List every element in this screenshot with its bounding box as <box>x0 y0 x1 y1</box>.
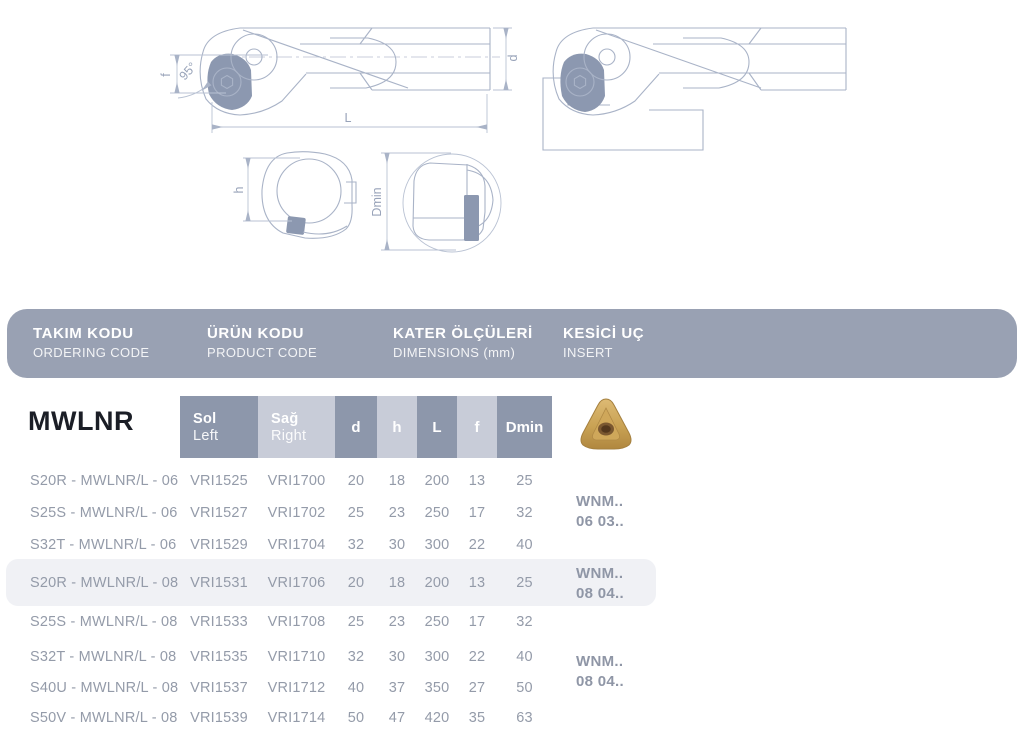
cell-sol: VRI1529 <box>180 535 258 555</box>
workpiece-view-drawing <box>543 28 846 150</box>
col-sol-left: Sol Left <box>180 396 258 458</box>
header-en-label: DIMENSIONS (mm) <box>393 345 533 360</box>
cell-L: 420 <box>417 708 457 728</box>
header-dimensions: KATER ÖLÇÜLERİ DIMENSIONS (mm) <box>393 325 533 360</box>
col-label: Sağ <box>271 411 299 427</box>
header-insert: KESİCİ UÇ INSERT <box>563 325 644 360</box>
insert-code-line: WNM.. <box>576 652 624 672</box>
col-sag-right: Sağ Right <box>258 396 335 458</box>
cell-d: 40 <box>335 678 377 698</box>
table-row: S25S - MWLNR/L - 08 VRI1533 VRI1708 25 2… <box>0 612 700 632</box>
table-header-bar: TAKIM KODU ORDERING CODE ÜRÜN KODU PRODU… <box>7 309 1017 378</box>
side-view-drawing: f 95° L d <box>159 28 520 133</box>
cell-sag: VRI1708 <box>258 612 335 632</box>
header-tr-label: ÜRÜN KODU <box>207 325 317 342</box>
technical-drawings: f 95° L d <box>0 0 1024 300</box>
header-en-label: ORDERING CODE <box>33 345 149 360</box>
insert-photo <box>575 396 637 452</box>
cell-code: S40U - MWLNR/L - 08 <box>30 678 190 698</box>
cell-dmin: 50 <box>497 678 552 698</box>
cell-dmin: 40 <box>497 647 552 667</box>
dim-L-label: L <box>345 111 352 125</box>
cell-f: 17 <box>457 612 497 632</box>
cell-code: S32T - MWLNR/L - 08 <box>30 647 190 667</box>
cell-sol: VRI1539 <box>180 708 258 728</box>
cell-f: 27 <box>457 678 497 698</box>
header-tr-label: KESİCİ UÇ <box>563 325 644 342</box>
cell-L: 300 <box>417 647 457 667</box>
insert-code-line: 08 04.. <box>576 584 624 604</box>
cell-L: 250 <box>417 503 457 523</box>
cell-dmin: 25 <box>497 573 552 593</box>
table-row: S50V - MWLNR/L - 08 VRI1539 VRI1714 50 4… <box>0 708 700 728</box>
col-d: d <box>335 396 377 458</box>
header-tr-label: TAKIM KODU <box>33 325 149 342</box>
header-product-code: ÜRÜN KODU PRODUCT CODE <box>207 325 317 360</box>
cell-sol: VRI1535 <box>180 647 258 667</box>
cell-d: 20 <box>335 471 377 491</box>
header-ordering-code: TAKIM KODU ORDERING CODE <box>33 325 149 360</box>
cell-code: S25S - MWLNR/L - 08 <box>30 612 190 632</box>
cell-f: 13 <box>457 573 497 593</box>
header-tr-label: KATER ÖLÇÜLERİ <box>393 325 533 342</box>
product-family: MWLNR <box>28 406 134 437</box>
cell-code: S20R - MWLNR/L - 06 <box>30 471 190 491</box>
cell-L: 200 <box>417 471 457 491</box>
col-label: Sol <box>193 411 216 427</box>
cell-code: S32T - MWLNR/L - 06 <box>30 535 190 555</box>
insert-hole-inner <box>601 425 611 433</box>
cell-dmin: 32 <box>497 503 552 523</box>
col-L: L <box>417 396 457 458</box>
insert-code-line: 06 03.. <box>576 512 624 532</box>
insert-code-line: 08 04.. <box>576 672 624 692</box>
cell-sag: VRI1712 <box>258 678 335 698</box>
cell-sag: VRI1706 <box>258 573 335 593</box>
col-label: Left <box>193 428 218 444</box>
cell-sol: VRI1531 <box>180 573 258 593</box>
dim-h-label: h <box>232 186 246 193</box>
cell-sag: VRI1700 <box>258 471 335 491</box>
cell-h: 30 <box>377 647 417 667</box>
cell-sag: VRI1710 <box>258 647 335 667</box>
cell-sol: VRI1527 <box>180 503 258 523</box>
cell-d: 50 <box>335 708 377 728</box>
cell-d: 25 <box>335 503 377 523</box>
cell-dmin: 25 <box>497 471 552 491</box>
cell-f: 17 <box>457 503 497 523</box>
bore-view-drawing: Dmin <box>370 153 501 252</box>
cell-f: 22 <box>457 535 497 555</box>
cell-sol: VRI1537 <box>180 678 258 698</box>
cell-sol: VRI1525 <box>180 471 258 491</box>
header-en-label: INSERT <box>563 345 644 360</box>
cell-L: 250 <box>417 612 457 632</box>
cell-code: S20R - MWLNR/L - 08 <box>30 573 190 593</box>
angle-95-label: 95° <box>177 60 200 83</box>
cell-d: 32 <box>335 647 377 667</box>
insert-code-line: WNM.. <box>576 492 624 512</box>
cell-d: 20 <box>335 573 377 593</box>
cell-sag: VRI1702 <box>258 503 335 523</box>
cell-h: 18 <box>377 573 417 593</box>
cell-L: 300 <box>417 535 457 555</box>
cell-dmin: 32 <box>497 612 552 632</box>
end-view-drawing: h <box>232 152 356 239</box>
cell-code: S25S - MWLNR/L - 06 <box>30 503 190 523</box>
insert-group-label: WNM.. 08 04.. <box>576 564 624 604</box>
cell-d: 25 <box>335 612 377 632</box>
cell-f: 22 <box>457 647 497 667</box>
table-row: S32T - MWLNR/L - 06 VRI1529 VRI1704 32 3… <box>0 535 700 555</box>
catalog-page: f 95° L d <box>0 0 1024 736</box>
cell-f: 35 <box>457 708 497 728</box>
col-label: Right <box>271 428 306 444</box>
insert-code-line: WNM.. <box>576 564 624 584</box>
dim-d-label: d <box>506 54 520 61</box>
cell-L: 200 <box>417 573 457 593</box>
header-en-label: PRODUCT CODE <box>207 345 317 360</box>
cell-dmin: 63 <box>497 708 552 728</box>
cell-h: 23 <box>377 503 417 523</box>
cell-d: 32 <box>335 535 377 555</box>
table-subheader: Sol Left Sağ Right d h L f Dmin <box>180 396 552 458</box>
insert-group-label: WNM.. 06 03.. <box>576 492 624 532</box>
col-f: f <box>457 396 497 458</box>
cell-h: 37 <box>377 678 417 698</box>
table-row: S20R - MWLNR/L - 06 VRI1525 VRI1700 20 1… <box>0 471 700 491</box>
cell-h: 23 <box>377 612 417 632</box>
cell-sol: VRI1533 <box>180 612 258 632</box>
dim-dmin-label: Dmin <box>370 187 384 216</box>
dim-f-label: f <box>159 73 173 77</box>
cell-f: 13 <box>457 471 497 491</box>
cell-sag: VRI1714 <box>258 708 335 728</box>
cell-dmin: 40 <box>497 535 552 555</box>
cell-code: S50V - MWLNR/L - 08 <box>30 708 190 728</box>
cell-h: 30 <box>377 535 417 555</box>
cell-L: 350 <box>417 678 457 698</box>
cell-sag: VRI1704 <box>258 535 335 555</box>
insert-group-label: WNM.. 08 04.. <box>576 652 624 692</box>
col-h: h <box>377 396 417 458</box>
cell-h: 47 <box>377 708 417 728</box>
col-dmin: Dmin <box>497 396 552 458</box>
cell-h: 18 <box>377 471 417 491</box>
